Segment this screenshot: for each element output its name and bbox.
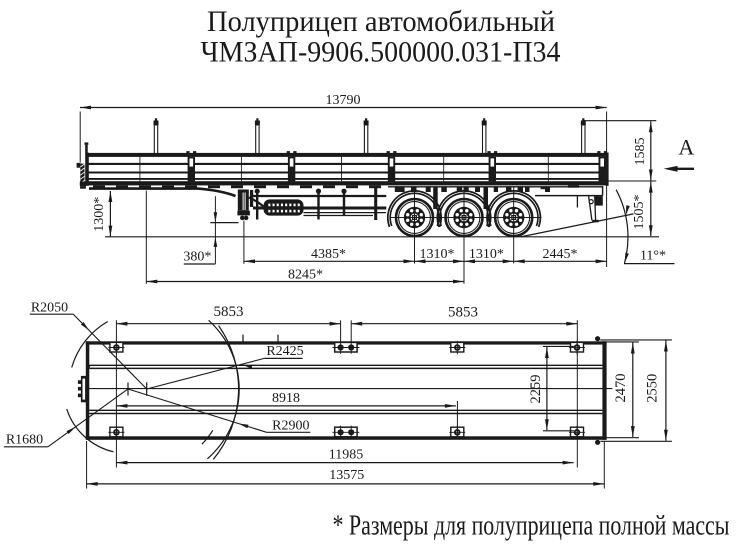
svg-text:380*: 380* [183,250,211,265]
svg-text:2259: 2259 [528,375,544,404]
svg-text:13575: 13575 [329,468,364,483]
svg-text:1310*: 1310* [420,247,455,262]
svg-text:1505*: 1505* [632,195,647,230]
svg-text:11985: 11985 [329,447,363,462]
svg-text:2445*: 2445* [543,247,578,262]
svg-text:R2425: R2425 [266,344,303,359]
svg-text:2470: 2470 [613,374,629,403]
svg-text:* Размеры для полуприцепа полн: * Размеры для полуприцепа полной массы [333,510,730,542]
svg-text:1300*: 1300* [92,197,107,232]
svg-text:R2050: R2050 [31,301,68,316]
svg-text:8245*: 8245* [288,267,323,282]
svg-text:5853: 5853 [214,304,244,320]
svg-text:8918: 8918 [272,391,300,406]
svg-text:А: А [678,135,694,160]
svg-text:R2900: R2900 [272,418,309,433]
svg-text:2550: 2550 [645,374,661,403]
svg-text:13790: 13790 [326,93,361,108]
svg-text:1585: 1585 [633,138,648,166]
svg-text:11°*: 11°* [640,249,666,264]
svg-text:5853: 5853 [448,305,478,321]
svg-text:Полуприцеп автомобильный: Полуприцеп автомобильный [207,5,555,38]
svg-text:R1680: R1680 [6,433,43,448]
svg-text:1310*: 1310* [469,247,504,262]
svg-text:ЧМЗАП-9906.500000.031-П34: ЧМЗАП-9906.500000.031-П34 [201,36,561,69]
svg-text:4385*: 4385* [311,247,346,262]
